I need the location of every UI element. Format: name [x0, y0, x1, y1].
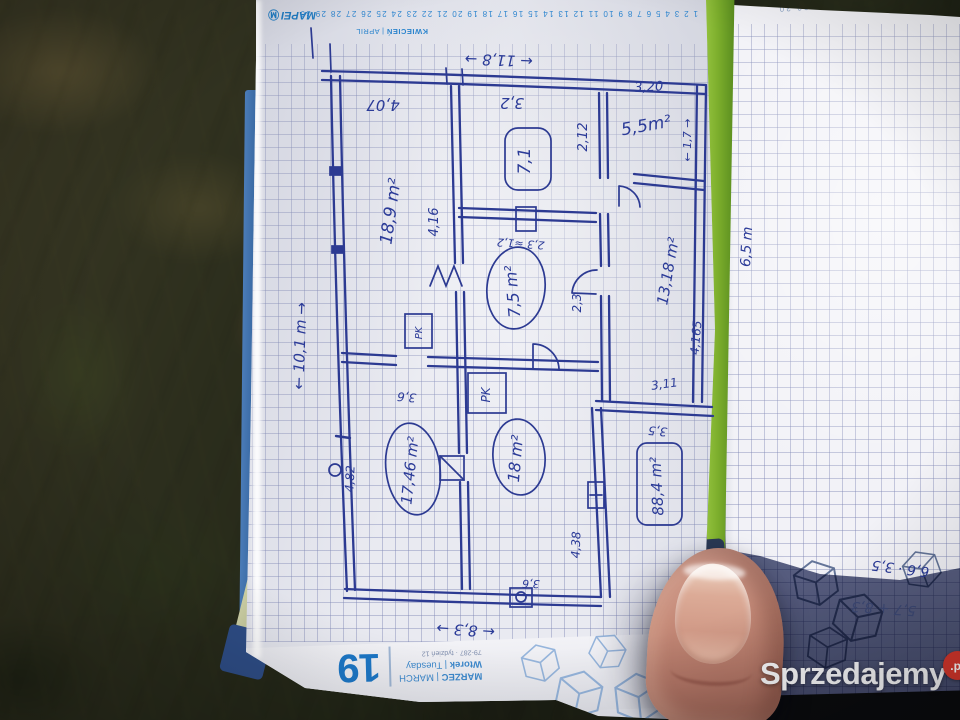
footer-meta-line: 79-287 · tydzień 12	[398, 647, 481, 658]
footer-day-number: 19	[338, 644, 382, 690]
thumb-crease	[670, 654, 753, 688]
month-header-pl: KWIECIEŃ	[387, 27, 429, 36]
footer-month-line: MARZEC | MARCH	[399, 670, 483, 684]
watermark: Sprzedajemy .pl	[760, 656, 960, 692]
mapei-badge-icon: Ⓜ	[268, 7, 279, 23]
footer-month-pl: MARZEC	[441, 670, 482, 682]
april-dates-strip: 1 2 3 4 5 6 7 8 9 10 11 12 13 14 15 16 1…	[334, 9, 698, 18]
month-header-april: KWIECIEŃ | APRIL	[332, 27, 428, 36]
thumbnail-nail	[673, 562, 754, 666]
footer-month-en: | MARCH	[399, 671, 442, 683]
footer-divider	[388, 647, 391, 687]
footer-lines: MARZEC | MARCH Wtorek | Tuesday 79-287 ·…	[398, 647, 482, 684]
watermark-brand: Sprzedajemy	[760, 656, 946, 692]
photo-of-notebook-floorplan: MAPEI Ⓜ KWIECIEŃ | APRIL 1 2 3 4 5 6 7 8…	[0, 0, 960, 720]
footer-weekday-en: | Tuesday	[406, 659, 450, 671]
footer-weekday-pl: Wtorek	[450, 659, 482, 671]
month-header-en: | APRIL	[356, 27, 387, 36]
